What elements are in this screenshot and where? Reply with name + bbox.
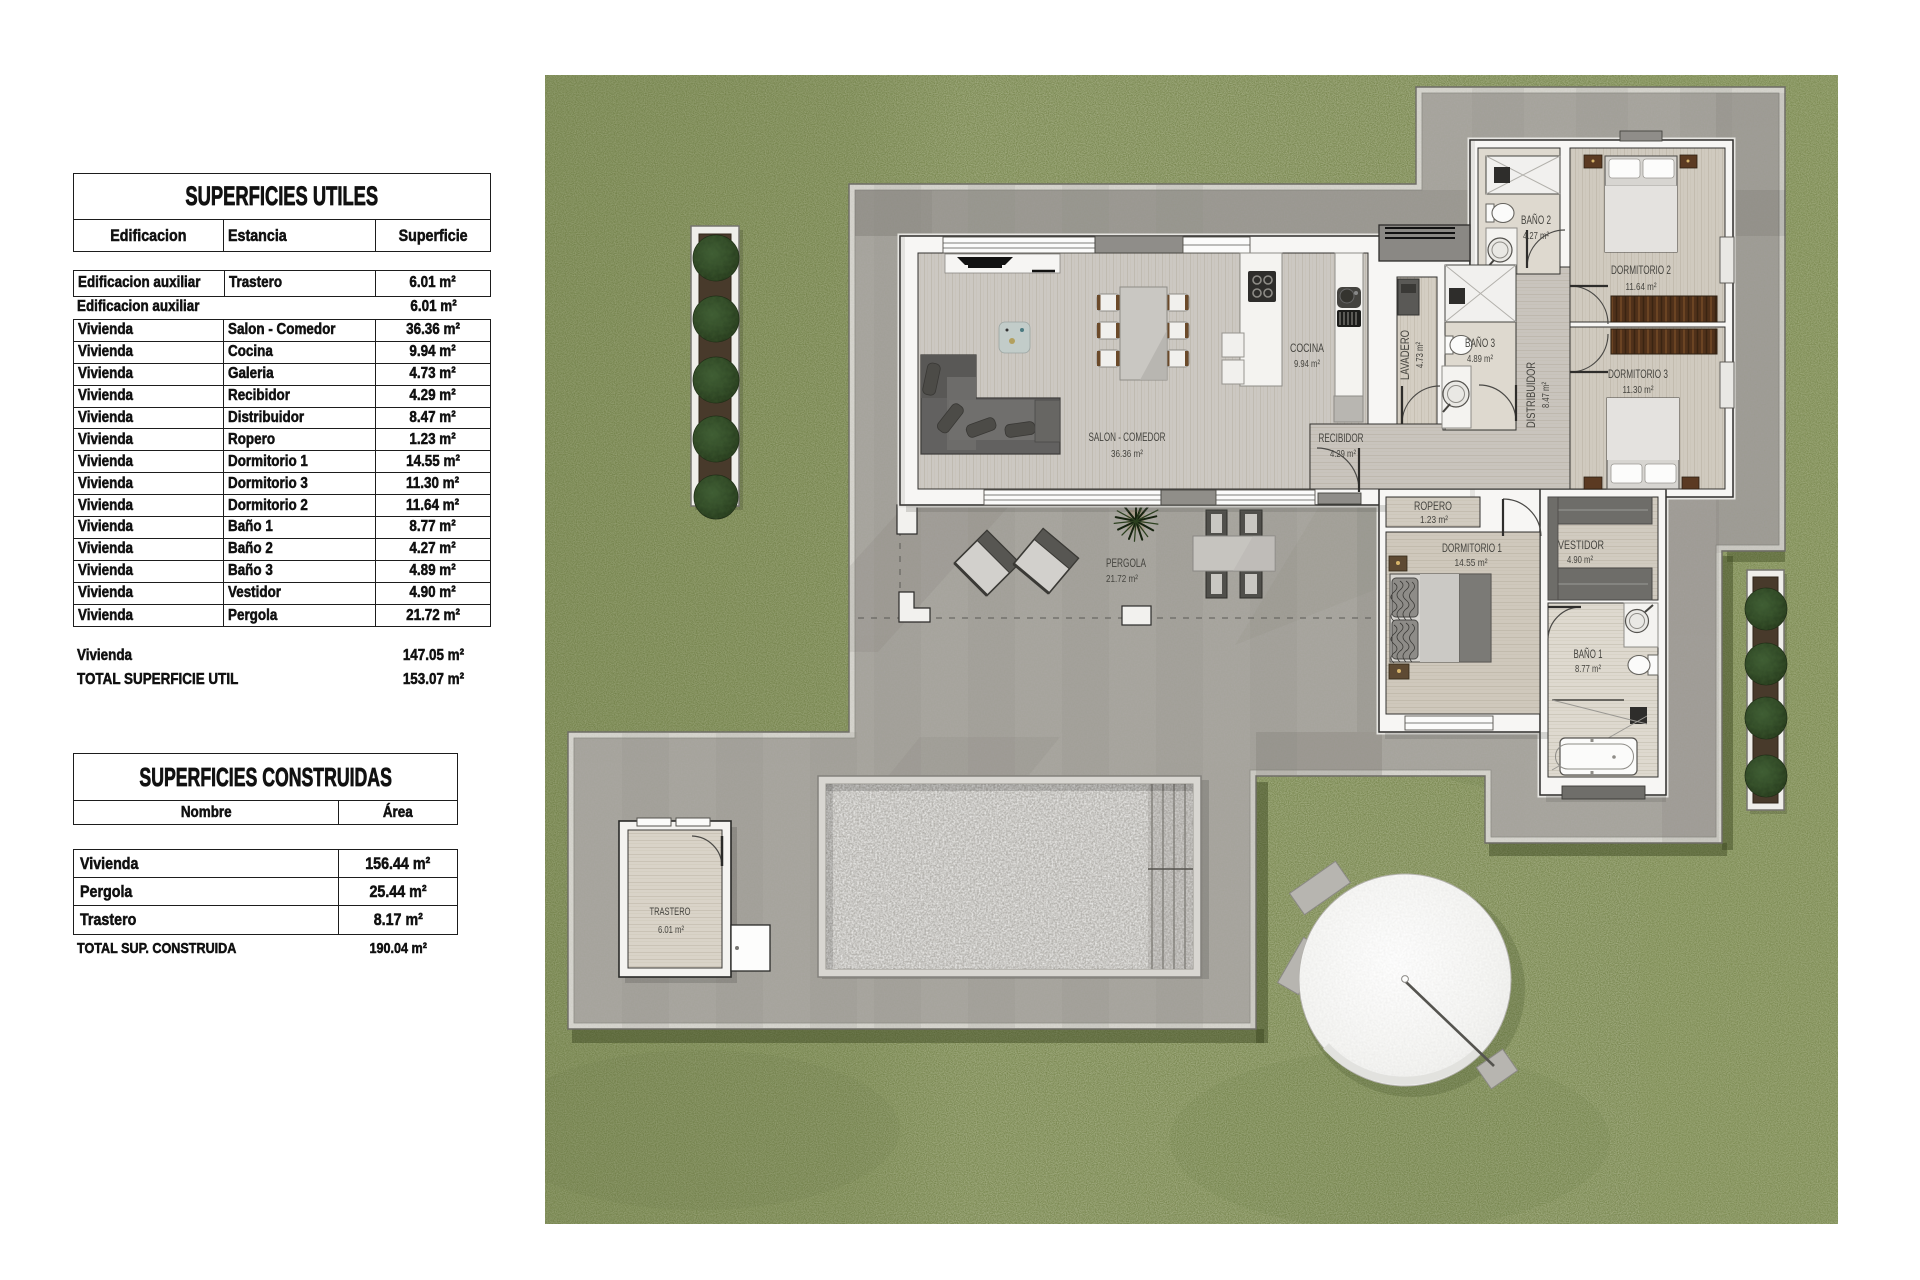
svg-text:8.47 m²: 8.47 m² xyxy=(1540,382,1552,408)
svg-text:8.77 m²: 8.77 m² xyxy=(1575,663,1601,675)
svg-text:COCINA: COCINA xyxy=(1290,341,1324,355)
svg-text:PERGOLA: PERGOLA xyxy=(1106,556,1146,570)
svg-text:TRASTERO: TRASTERO xyxy=(650,906,691,918)
svg-text:9.94 m²: 9.94 m² xyxy=(1294,358,1320,370)
svg-text:ROPERO: ROPERO xyxy=(1414,499,1452,513)
svg-text:1.23 m²: 1.23 m² xyxy=(1420,514,1448,526)
svg-text:4.27 m²: 4.27 m² xyxy=(1523,230,1549,242)
svg-text:BAÑO 3: BAÑO 3 xyxy=(1465,336,1495,350)
svg-text:VESTIDOR: VESTIDOR xyxy=(1558,538,1604,552)
svg-text:BAÑO 1: BAÑO 1 xyxy=(1574,647,1603,661)
svg-text:DORMITORIO 2: DORMITORIO 2 xyxy=(1611,263,1671,277)
svg-text:DORMITORIO 3: DORMITORIO 3 xyxy=(1608,367,1668,381)
svg-text:36.36 m²: 36.36 m² xyxy=(1111,448,1143,460)
svg-text:11.30 m²: 11.30 m² xyxy=(1623,384,1654,396)
svg-text:11.64 m²: 11.64 m² xyxy=(1626,281,1657,293)
svg-text:6.01 m²: 6.01 m² xyxy=(658,925,685,936)
svg-text:14.55 m²: 14.55 m² xyxy=(1455,557,1488,569)
svg-text:4.29 m²: 4.29 m² xyxy=(1330,448,1356,460)
svg-text:RECIBIDOR: RECIBIDOR xyxy=(1319,431,1364,445)
svg-text:LAVADERO: LAVADERO xyxy=(1398,330,1412,380)
svg-text:4.90 m²: 4.90 m² xyxy=(1567,554,1593,566)
svg-text:DORMITORIO 1: DORMITORIO 1 xyxy=(1442,541,1502,555)
svg-text:4.73 m²: 4.73 m² xyxy=(1414,342,1426,368)
svg-text:BAÑO 2: BAÑO 2 xyxy=(1521,213,1551,227)
svg-text:DISTRIBUIDOR: DISTRIBUIDOR xyxy=(1524,362,1538,428)
svg-text:SALON - COMEDOR: SALON - COMEDOR xyxy=(1089,430,1166,444)
svg-text:21.72 m²: 21.72 m² xyxy=(1106,573,1138,585)
svg-text:4.89 m²: 4.89 m² xyxy=(1467,353,1493,365)
